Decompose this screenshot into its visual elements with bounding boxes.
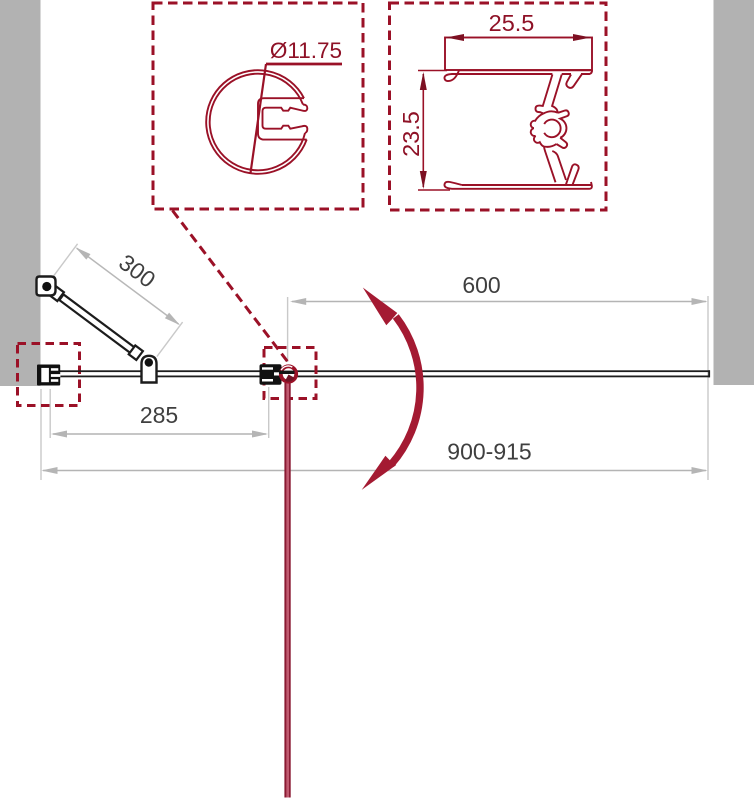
svg-text:600: 600 [462, 272, 500, 298]
svg-text:25.5: 25.5 [489, 10, 535, 36]
svg-text:900-915: 900-915 [447, 439, 531, 465]
svg-text:23.5: 23.5 [398, 111, 424, 157]
svg-text:Ø11.75: Ø11.75 [270, 38, 342, 63]
svg-text:285: 285 [140, 402, 178, 428]
